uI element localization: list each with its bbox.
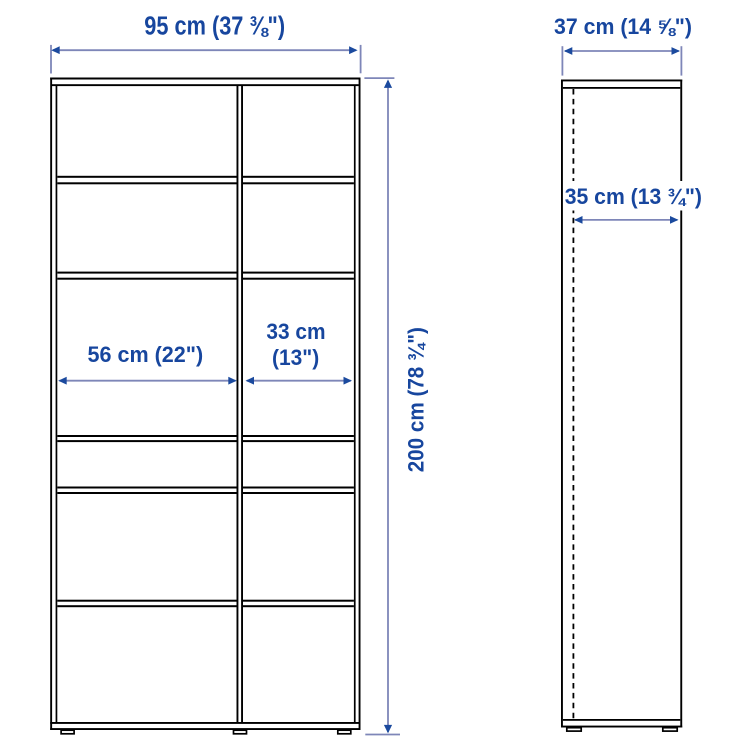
svg-text:200 cm (78 ¾"): 200 cm (78 ¾")	[404, 327, 429, 472]
svg-text:35 cm (13 ¾"): 35 cm (13 ¾")	[565, 184, 702, 209]
svg-text:37 cm (14 ⅝"): 37 cm (14 ⅝")	[554, 14, 692, 39]
svg-text:95 cm (37 ⅜"): 95 cm (37 ⅜")	[144, 13, 285, 41]
svg-text:(13"): (13")	[272, 345, 319, 370]
svg-text:56 cm (22"): 56 cm (22")	[88, 342, 204, 367]
svg-text:33 cm: 33 cm	[266, 319, 325, 344]
